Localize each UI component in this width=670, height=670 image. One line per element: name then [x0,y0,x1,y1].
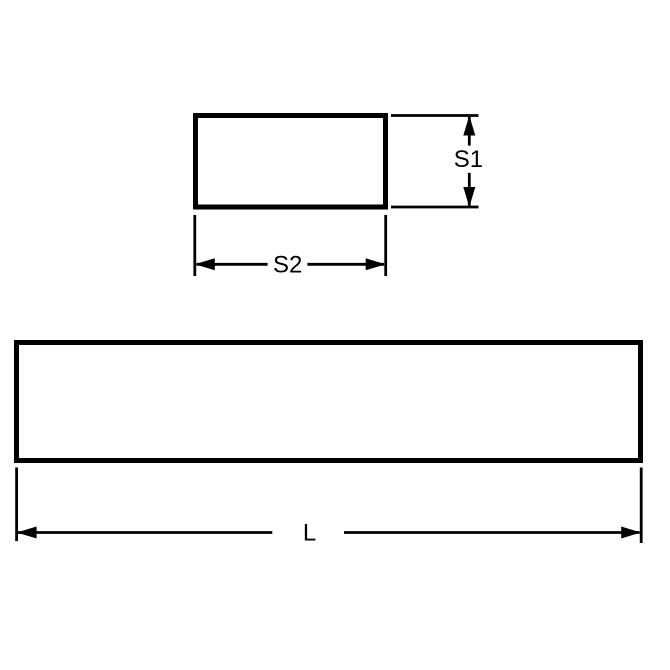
svg-text:S1: S1 [454,146,483,173]
svg-text:L: L [303,520,316,547]
svg-text:S2: S2 [273,252,302,279]
